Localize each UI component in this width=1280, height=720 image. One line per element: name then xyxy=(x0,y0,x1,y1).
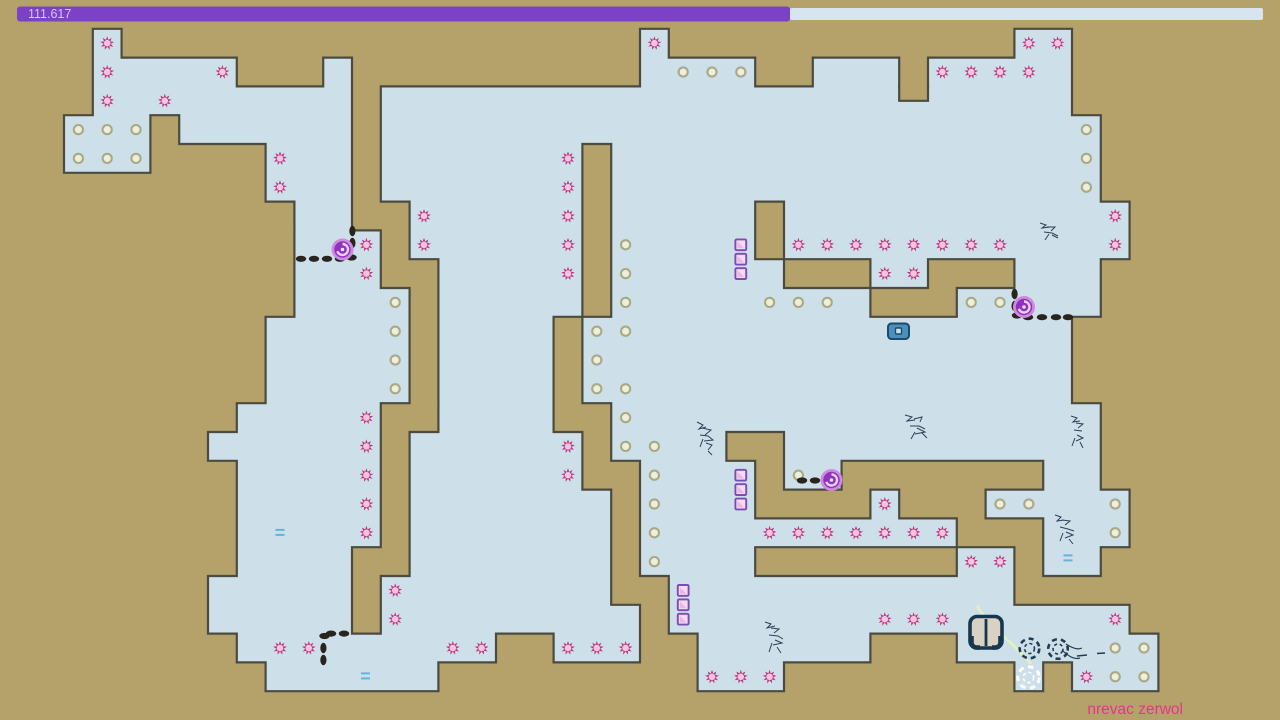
svg-text:nrevac zerwol: nrevac zerwol xyxy=(1087,701,1183,718)
svg-text:111.617: 111.617 xyxy=(28,7,71,21)
